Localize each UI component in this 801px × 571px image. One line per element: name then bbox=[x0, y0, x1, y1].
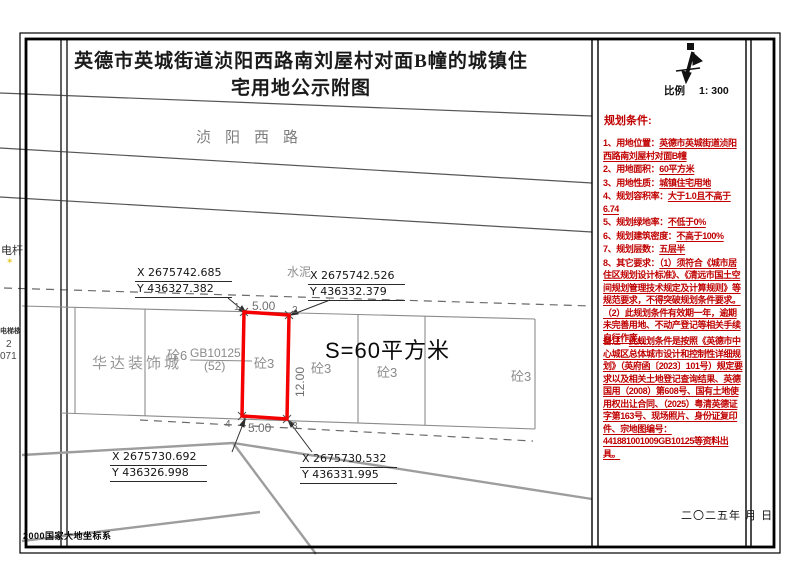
coordinate-x: X 2675742.526 bbox=[308, 269, 405, 285]
condition-label: 3、用地性质： bbox=[603, 178, 659, 188]
condition-item: 7、规划层数：五层半 bbox=[603, 243, 745, 256]
condition-label: 8、其它要求： bbox=[603, 258, 659, 268]
coordinate-y: Y 436332.379 bbox=[308, 285, 405, 301]
condition-item: 4、规划容积率：大于1.0且不高于6.74 bbox=[603, 190, 745, 215]
condition-value: 五层半 bbox=[659, 244, 685, 254]
coordinate-callout-1: X 2675742.685 Y 436327.382 bbox=[135, 266, 232, 298]
parcel-code-label: GB10125 bbox=[190, 346, 241, 360]
dimension-bottom: 5.00 bbox=[248, 421, 271, 435]
condition-label: 6、规划建筑密度： bbox=[603, 231, 676, 241]
issue-date: 二〇二五年 月 日 bbox=[681, 507, 773, 523]
margin-number-label: 2 bbox=[6, 339, 12, 350]
condition-item: 8、其它要求：（1）须符合《城市居住区规划设计标准》、《清远市国土空间规划管理技… bbox=[603, 257, 745, 345]
coordinate-x: X 2675742.685 bbox=[135, 266, 232, 282]
wall-lines bbox=[61, 40, 67, 547]
condition-label: 5、规划绿地率： bbox=[603, 217, 668, 227]
planning-conditions-title: 规划条件: bbox=[604, 112, 652, 128]
sheet-title: 英德市英城街道浈阳西路南刘屋村对面B幢的城镇住宅用地公示附图 bbox=[65, 48, 537, 102]
condition-label: 4、规划容积率： bbox=[603, 191, 668, 201]
coordinate-y: Y 436331.995 bbox=[300, 468, 397, 484]
plot-area-label: S=60平方米 bbox=[325, 333, 450, 365]
condition-label: 1、用地位置： bbox=[603, 138, 659, 148]
coordinate-callout-2: X 2675742.526 Y 436332.379 bbox=[308, 269, 405, 301]
condition-value: 不低于0% bbox=[668, 217, 706, 227]
condition-value: 城镇住宅用地 bbox=[659, 178, 711, 188]
condition-value: （1）须符合《城市居住区规划设计标准》、《清远市国土空间规划管理技术规定及计算规… bbox=[603, 258, 741, 343]
parcel-code-sub-label: (52) bbox=[204, 359, 225, 373]
scale-value: 1: 300 bbox=[699, 85, 729, 97]
pole-marker-icon: ✶ bbox=[6, 256, 14, 267]
scale-caption: 比例 bbox=[664, 85, 685, 97]
condition-label: 2、用地面积： bbox=[603, 164, 659, 174]
condition-item: 6、规划建筑密度：不高于100% bbox=[603, 230, 745, 243]
coordinate-x: X 2675730.532 bbox=[300, 452, 397, 468]
coordinate-y: Y 436326.998 bbox=[110, 466, 207, 482]
margin-building-label: 电梯楼 bbox=[0, 326, 21, 336]
remark-label: 备注： bbox=[603, 336, 629, 346]
road-lines bbox=[0, 93, 592, 232]
coordinate-x: X 2675730.692 bbox=[110, 450, 207, 466]
corner-number: 4 bbox=[225, 419, 231, 430]
scale-label: 比例1: 300 bbox=[664, 83, 729, 98]
condition-item: 3、用地性质：城镇住宅用地 bbox=[603, 177, 745, 190]
condition-item: 5、规划绿地率：不低于0% bbox=[603, 216, 745, 229]
north-arrow-icon bbox=[676, 43, 702, 83]
coordinate-system-note: 2000国家大地坐标系 bbox=[23, 529, 112, 542]
building-type-label: 砼3 bbox=[254, 353, 274, 372]
dimension-top: 5.00 bbox=[252, 299, 275, 313]
corner-number: 2 bbox=[292, 305, 298, 316]
condition-label: 7、规划层数： bbox=[603, 244, 659, 254]
condition-item: 2、用地面积：60平方米 bbox=[603, 163, 745, 176]
corner-number: 3 bbox=[292, 421, 298, 432]
building-type-label: 砼3 bbox=[511, 366, 531, 385]
condition-value: 不高于100% bbox=[676, 231, 723, 241]
building-type-label: 砼6 bbox=[167, 345, 187, 364]
condition-value: 60平方米 bbox=[659, 164, 694, 174]
coordinate-callout-3: X 2675730.532 Y 436331.995 bbox=[300, 452, 397, 484]
coordinate-y: Y 436327.382 bbox=[135, 282, 232, 298]
plan-sheet: 英德市英城街道浈阳西路南刘屋村对面B幢的城镇住宅用地公示附图 浈阳西路 电杆 ✶… bbox=[0, 0, 801, 571]
road-name-label: 浈阳西路 bbox=[196, 126, 312, 147]
remark-note: 备注：此规划条件是按照《英德市中心城区总体城市设计和控制性详细规划》（英府函〔2… bbox=[603, 335, 745, 460]
margin-number-label: 071 bbox=[0, 351, 17, 362]
corner-number: 1 bbox=[234, 302, 240, 313]
remark-value: 此规划条件是按照《英德市中心城区总体城市设计和控制性详细规划》（英府函〔2023… bbox=[603, 336, 743, 459]
coordinate-callout-4: X 2675730.692 Y 436326.998 bbox=[110, 450, 207, 482]
dimension-right: 12.00 bbox=[293, 367, 307, 397]
condition-item: 1、用地位置：英德市英城街道浈阳西路南刘屋村对面B幢 bbox=[603, 137, 745, 162]
planning-conditions-list: 1、用地位置：英德市英城街道浈阳西路南刘屋村对面B幢 2、用地面积：60平方米 … bbox=[603, 137, 745, 345]
